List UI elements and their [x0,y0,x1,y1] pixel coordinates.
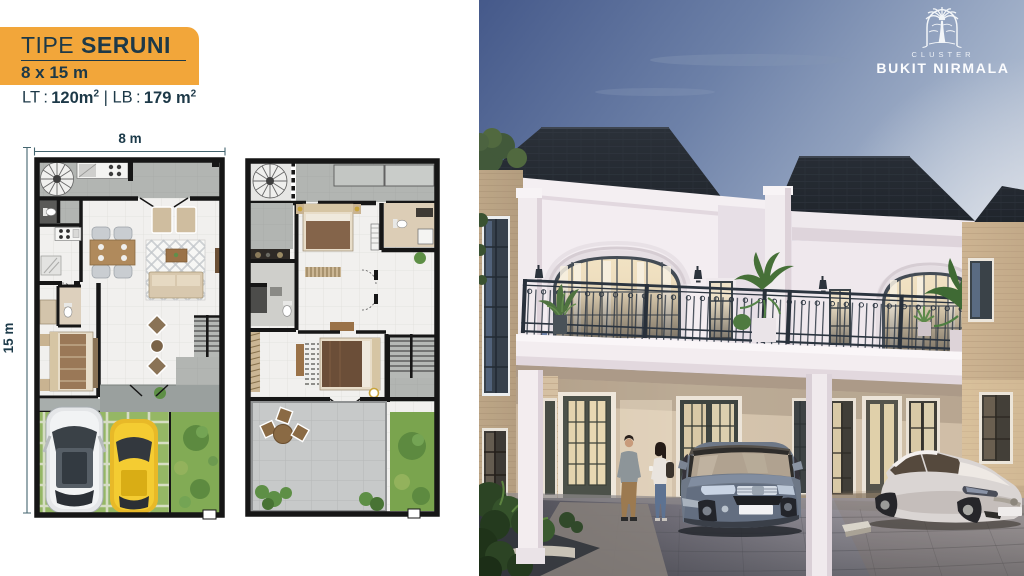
svg-text:8 m: 8 m [118,131,141,146]
svg-text:BUKIT NIRMALA: BUKIT NIRMALA [876,60,1009,76]
svg-text:15 m: 15 m [1,323,16,354]
svg-text:CLUSTER: CLUSTER [911,50,974,59]
